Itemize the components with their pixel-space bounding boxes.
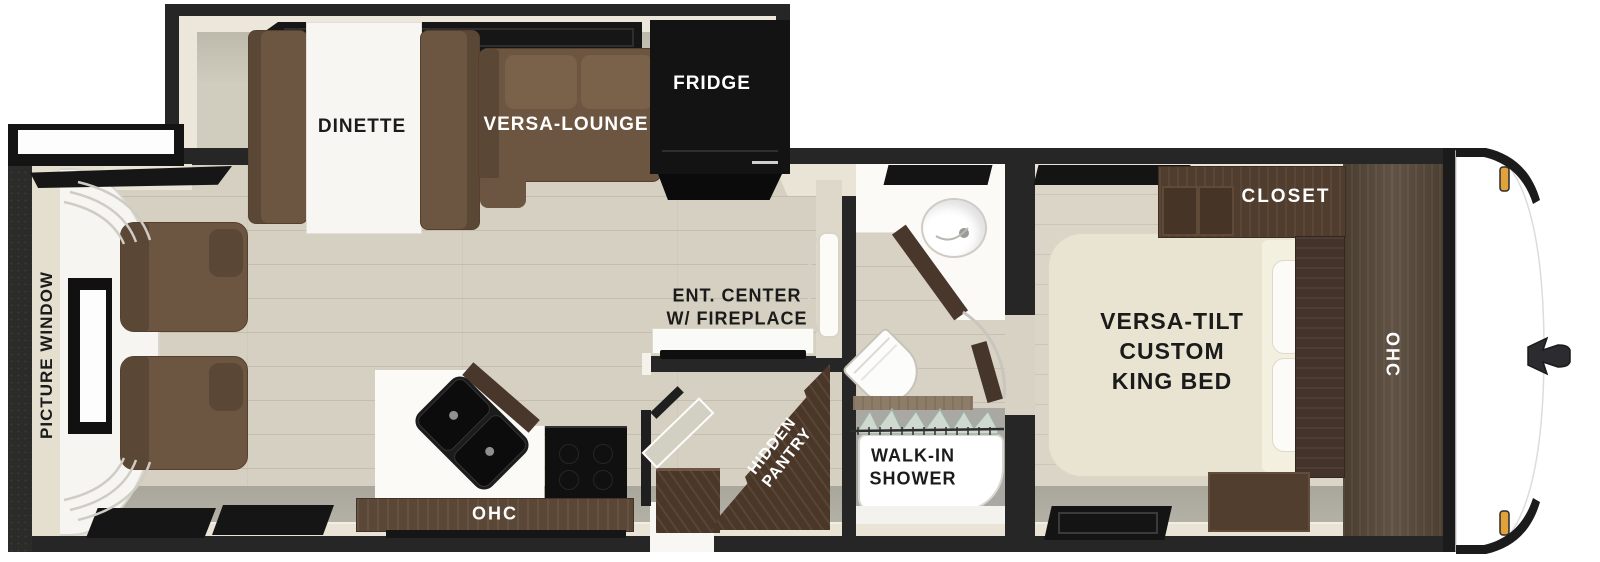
fridge-badge [752,161,778,164]
fridge-handle-line [662,150,778,152]
front-cap-trim-top [1456,148,1540,204]
front-cap [1456,148,1570,554]
recliner-1 [120,222,248,332]
bathroom-sink [921,198,987,258]
recliner-1-headrest [209,229,243,277]
recliner-2-back [121,357,149,469]
king-bed-label-line2: CUSTOM [1100,337,1244,367]
picture-window-label: PICTURE WINDOW [37,271,57,439]
walk-in-shower-label-line1: WALK-IN [870,445,957,468]
main-left-wall [8,148,32,552]
fridge [650,20,790,174]
closet-door-1 [1162,186,1198,236]
kitchen-ohc-label: OHC [472,504,518,525]
closet-label: CLOSET [1241,186,1330,208]
recliner-2 [120,356,248,470]
recliner-1-back [121,223,149,331]
closet-door-2 [1198,186,1234,236]
bathroom-sink-drain [959,228,969,238]
window-top-left [8,124,184,166]
wall-front [1443,148,1456,552]
main-bottom-wall [8,536,1456,552]
rv-floorplan: DINETTE VERSA-LOUNGE FRIDGE PICTURE WIND… [0,0,1600,562]
window-top-left-glass [18,130,174,154]
fridge-base [658,174,782,200]
front-cap-body [1456,151,1544,551]
wall-bath-bedroom-opening [1005,315,1035,415]
window-bedroom-bottom-frame [1058,512,1158,534]
burner-4 [593,470,613,490]
hitch [1528,338,1570,374]
burner-1 [559,444,579,464]
king-bed-label: VERSA-TILT CUSTOM KING BED [1100,307,1244,397]
dinette-bench-right [420,30,480,230]
burner-3 [559,470,579,490]
sofa-back-cushion-1 [505,55,577,109]
window-bedroom-bottom [1044,506,1172,540]
walk-in-shower-label-line2: SHOWER [870,468,957,491]
ent-center-tv [660,350,806,359]
window-kitchen-bottom [386,530,626,538]
window-bottom-left-2 [212,505,334,535]
versa-lounge-label: VERSA-LOUNGE [483,114,648,136]
pantry-lower-cabinet [656,468,720,533]
sink-drain-right [484,445,497,458]
dinette-bench-left [248,30,308,224]
recliner-2-headrest [209,363,243,411]
sink-drain-left [448,409,461,422]
king-bed-label-line1: VERSA-TILT [1100,307,1244,337]
king-bed-label-line3: KING BED [1100,367,1244,397]
front-cap-trim-bottom [1456,498,1540,554]
wall-living-bath [842,148,856,552]
bathroom-door-living [818,232,840,338]
rear-window-glass [80,290,106,422]
ent-center-label-line2: W/ FIREPLACE [667,307,808,330]
fridge-label: FRIDGE [673,73,751,95]
ent-center-label-line1: ENT. CENTER [667,285,808,308]
bedroom-ohc-label: OHC [1382,332,1403,378]
rear-window [68,278,112,434]
walk-in-shower-label: WALK-IN SHOWER [870,445,957,492]
window-bathroom-top [884,165,993,185]
closet-column [1295,236,1345,478]
shower-bottom-trim [856,506,1005,524]
marker-light-top [1500,167,1509,191]
stove [545,426,627,502]
shower-step [853,396,973,410]
dinette-label: DINETTE [318,116,406,138]
wall-ent-center-endcap [642,353,651,375]
window-bottom-left-1 [86,508,216,538]
burner-2 [593,444,613,464]
marker-light-bottom [1500,511,1509,535]
ent-center-label: ENT. CENTER W/ FIREPLACE [667,285,808,330]
sofa-back-cushion-2 [581,55,653,109]
bed-foot-cabinet [1208,472,1310,532]
sofa-chaise [480,178,526,208]
